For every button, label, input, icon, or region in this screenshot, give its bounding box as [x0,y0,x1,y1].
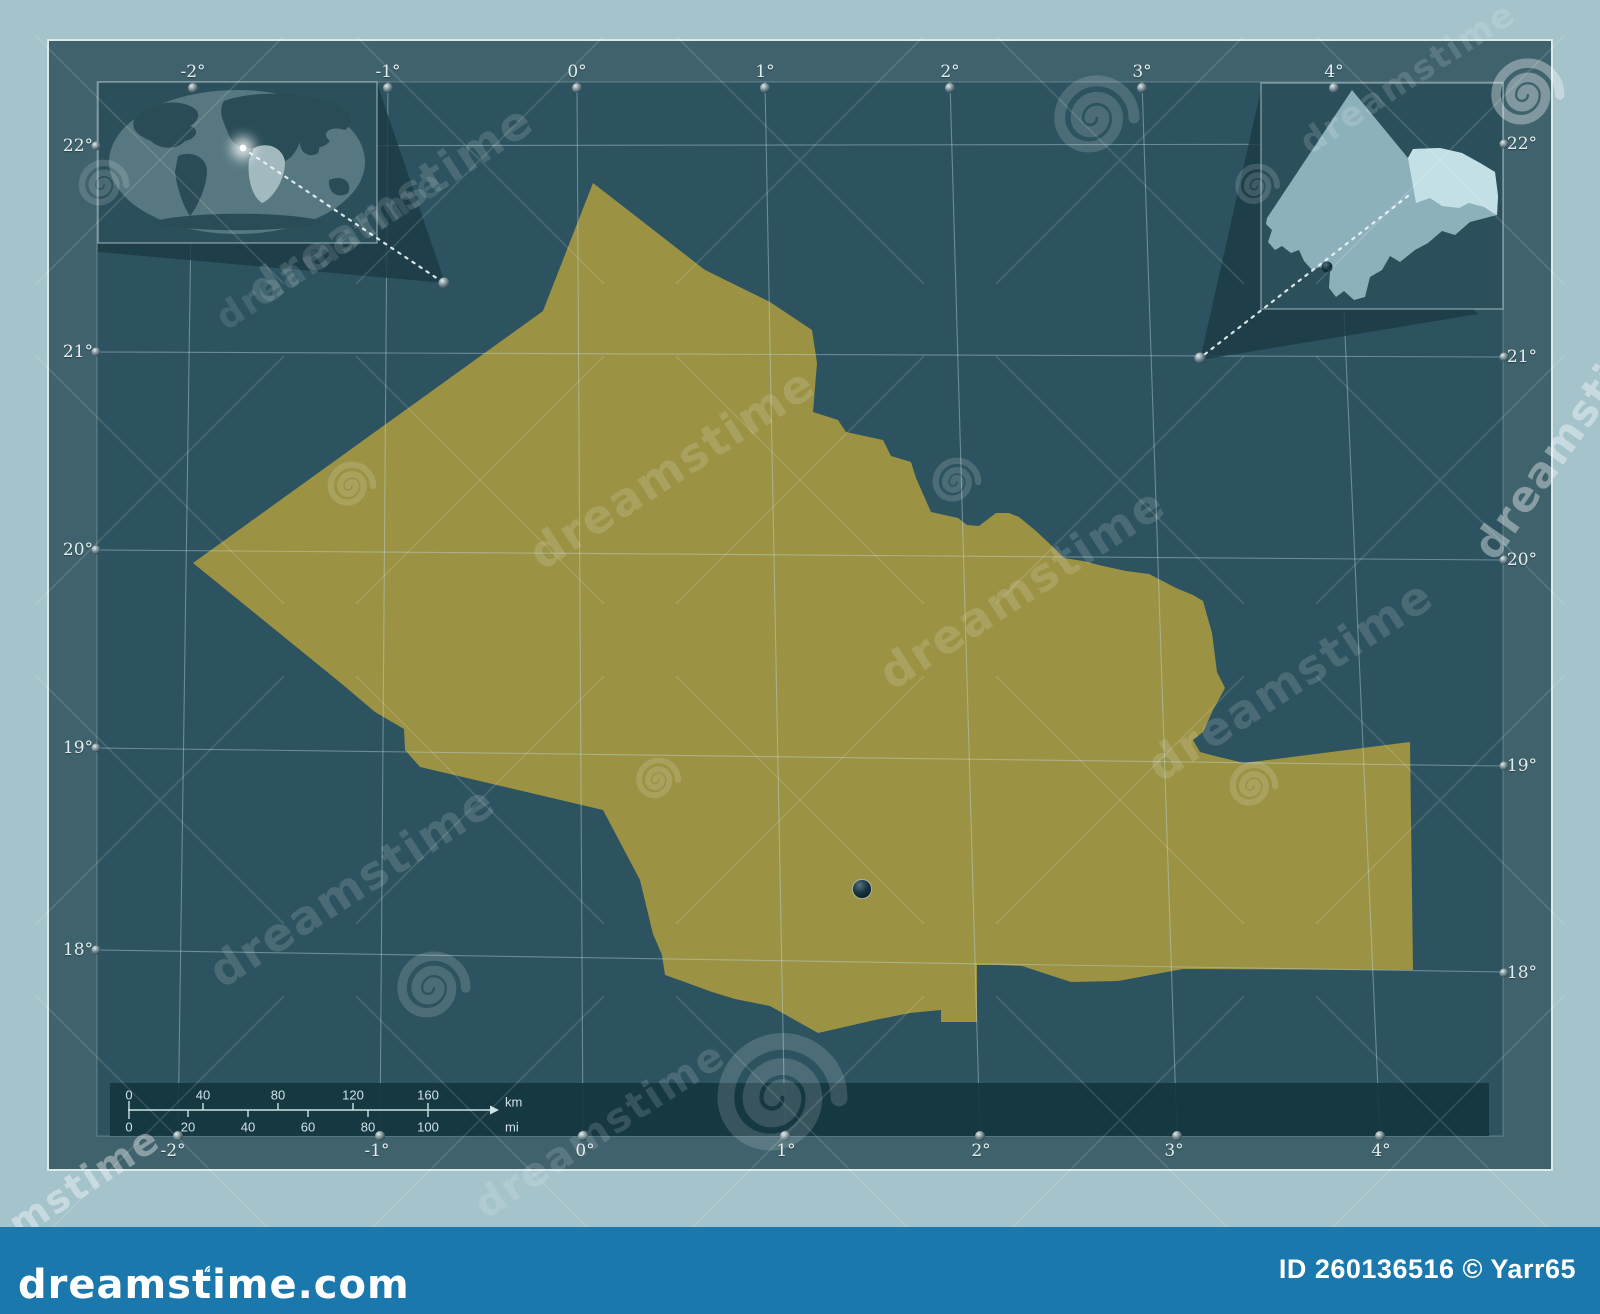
axis-label-top: -1° [375,62,400,82]
scale-mi-tick: 20 [181,1120,195,1135]
axis-label-right: 20° [1507,550,1537,570]
axis-label-bottom: 0° [575,1141,594,1161]
axis-label-right: 21° [1507,347,1537,367]
axis-label-top: 0° [567,62,586,82]
image-credit: ID 260136516 © Yarr65 [1279,1254,1576,1285]
axis-label-right: 22° [1507,134,1537,154]
axis-label-bottom: 1° [776,1141,795,1161]
scale-km-unit: km [505,1095,522,1110]
scale-mi-tick: 0 [125,1120,132,1135]
axis-label-top: 3° [1132,62,1151,82]
dreamstime-logo: dreamstime.com [18,1262,410,1308]
scale-km-tick: 160 [417,1088,439,1103]
axis-label-bottom: -2° [160,1141,185,1161]
scale-km-tick: 120 [342,1088,364,1103]
scale-mi-tick: 60 [301,1120,315,1135]
axis-label-right: 18° [1507,963,1537,983]
axis-label-top: 2° [940,62,959,82]
scale-mi-tick: 80 [361,1120,375,1135]
axis-label-top: 4° [1324,62,1343,82]
axis-label-bottom: 3° [1164,1141,1183,1161]
scale-mi-tick: 100 [417,1120,439,1135]
axis-label-right: 19° [1507,756,1537,776]
map-graphic [0,0,1600,1314]
stock-map-image: -2° -1° 0° 1° 2° 3° 4° -2° -1° 0° 1° 2° … [0,0,1600,1314]
axis-label-left: 21° [63,342,93,362]
axis-label-left: 20° [63,540,93,560]
axis-label-bottom: 2° [971,1141,990,1161]
axis-label-top: -2° [180,62,205,82]
axis-label-left: 19° [63,738,93,758]
axis-label-left: 18° [63,940,93,960]
dreamstime-logo-spiral-icon [186,1248,210,1272]
scale-mi-tick: 40 [241,1120,255,1135]
axis-label-bottom: 4° [1371,1141,1390,1161]
axis-label-left: 22° [63,136,93,156]
scale-km-tick: 40 [196,1088,210,1103]
scale-km-tick: 80 [271,1088,285,1103]
scale-mi-unit: mi [505,1120,519,1135]
axis-label-top: 1° [755,62,774,82]
axis-label-bottom: -1° [364,1141,389,1161]
scale-km-tick: 0 [125,1088,132,1103]
